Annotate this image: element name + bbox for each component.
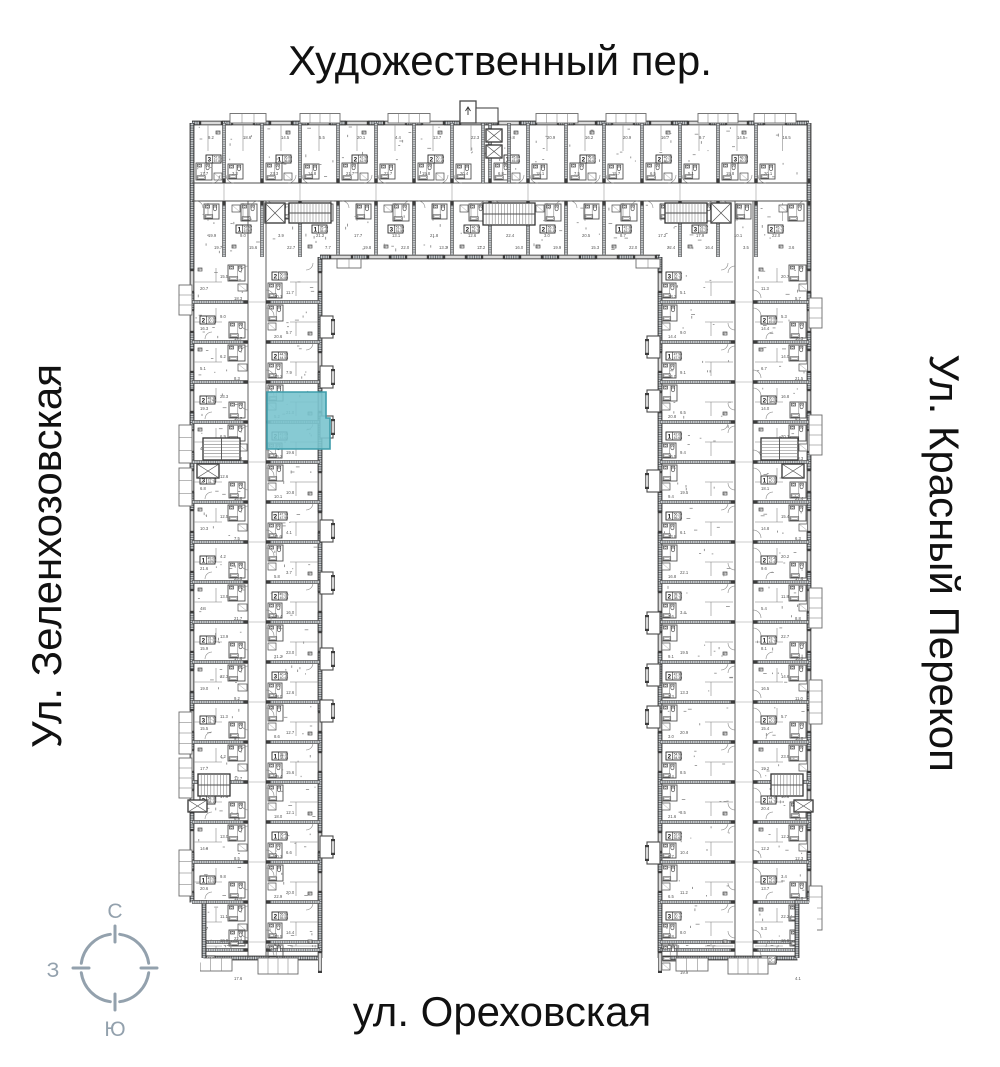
svg-text:15.6: 15.6: [286, 770, 295, 775]
svg-text:23.3: 23.3: [220, 394, 229, 399]
svg-text:5.1: 5.1: [200, 366, 206, 371]
svg-text:11.1: 11.1: [220, 914, 229, 919]
svg-text:1: 1: [278, 156, 282, 163]
svg-text:20.7: 20.7: [781, 274, 790, 279]
svg-text:2: 2: [202, 317, 206, 324]
svg-text:20.9: 20.9: [547, 135, 556, 140]
svg-text:14.4: 14.4: [286, 930, 295, 935]
svg-text:16.2: 16.2: [585, 135, 594, 140]
svg-text:2: 2: [274, 353, 278, 360]
svg-text:43.54: 43.54: [208, 880, 217, 884]
svg-text:14.5: 14.5: [281, 135, 290, 140]
svg-text:20.0: 20.0: [286, 890, 295, 895]
svg-text:16.8: 16.8: [781, 394, 790, 399]
svg-text:9.0: 9.0: [240, 233, 246, 238]
svg-text:5.1: 5.1: [680, 290, 686, 295]
svg-text:З: З: [47, 959, 60, 982]
svg-text:1: 1: [668, 353, 672, 360]
svg-text:16.5: 16.5: [761, 686, 770, 691]
svg-text:11.7: 11.7: [286, 290, 295, 295]
svg-text:9.1: 9.1: [680, 370, 686, 375]
svg-text:30.77: 30.77: [674, 916, 683, 920]
svg-text:13.9: 13.9: [220, 594, 229, 599]
svg-text:23.8: 23.8: [668, 534, 677, 539]
svg-text:31.30: 31.30: [208, 640, 217, 644]
svg-text:2: 2: [658, 156, 662, 163]
svg-text:10.1: 10.1: [274, 494, 283, 499]
svg-text:9.7: 9.7: [234, 736, 240, 741]
svg-text:38.72: 38.72: [674, 596, 683, 600]
svg-text:21.6: 21.6: [200, 566, 209, 571]
svg-text:8.3: 8.3: [234, 376, 240, 381]
svg-text:47.94: 47.94: [674, 356, 683, 360]
svg-text:12.2: 12.2: [477, 245, 486, 250]
svg-text:17.7: 17.7: [200, 171, 209, 176]
svg-text:3.4: 3.4: [781, 874, 787, 879]
svg-text:42.41: 42.41: [769, 560, 778, 564]
svg-text:14.0: 14.0: [761, 406, 770, 411]
svg-text:Художественный пер.: Художественный пер.: [288, 37, 712, 84]
svg-text:5.7: 5.7: [286, 330, 292, 335]
svg-text:14.4: 14.4: [668, 334, 677, 339]
svg-text:50.10: 50.10: [436, 159, 445, 163]
svg-text:9.4: 9.4: [680, 450, 686, 455]
svg-text:3: 3: [668, 913, 672, 920]
svg-text:3: 3: [274, 673, 278, 680]
svg-text:3.3: 3.3: [668, 694, 674, 699]
svg-text:9.8: 9.8: [220, 874, 226, 879]
svg-text:5.1: 5.1: [688, 171, 694, 176]
svg-text:9.1: 9.1: [668, 654, 674, 659]
svg-text:18.0: 18.0: [274, 694, 283, 699]
svg-text:17.7: 17.7: [200, 766, 209, 771]
svg-text:17.6: 17.6: [234, 656, 243, 661]
svg-text:2: 2: [668, 753, 672, 760]
svg-text:13.3: 13.3: [439, 245, 448, 250]
svg-text:3.5: 3.5: [743, 245, 749, 250]
svg-text:12.6: 12.6: [468, 233, 477, 238]
svg-text:15.5: 15.5: [220, 274, 229, 279]
svg-text:16.4: 16.4: [705, 245, 714, 250]
svg-text:14.8: 14.8: [234, 496, 243, 501]
svg-text:2: 2: [668, 833, 672, 840]
svg-text:22.7: 22.7: [781, 634, 790, 639]
svg-text:4.2: 4.2: [220, 554, 226, 559]
svg-text:19.0: 19.0: [200, 686, 209, 691]
svg-text:17.2: 17.2: [658, 233, 667, 238]
svg-text:9.4: 9.4: [668, 494, 674, 499]
svg-text:15.2: 15.2: [274, 454, 283, 459]
svg-text:6.4: 6.4: [668, 774, 674, 779]
svg-text:14.6: 14.6: [781, 674, 790, 679]
svg-text:22.9: 22.9: [274, 894, 283, 899]
svg-text:31.72: 31.72: [208, 720, 217, 724]
svg-text:16.6: 16.6: [781, 938, 790, 943]
svg-text:5.7: 5.7: [795, 296, 801, 301]
svg-text:48.35: 48.35: [208, 400, 217, 404]
svg-text:6.2: 6.2: [220, 354, 226, 359]
svg-text:15.9: 15.9: [200, 646, 209, 651]
svg-text:2: 2: [763, 877, 767, 884]
svg-text:23.0: 23.0: [286, 650, 295, 655]
svg-text:16.7: 16.7: [661, 135, 670, 140]
svg-text:16.8: 16.8: [668, 574, 677, 579]
svg-text:5.8: 5.8: [274, 574, 280, 579]
svg-text:21.5: 21.5: [795, 376, 804, 381]
svg-text:3.4: 3.4: [680, 610, 686, 615]
svg-text:17.6: 17.6: [234, 976, 243, 981]
svg-text:8.9: 8.9: [234, 816, 240, 821]
svg-text:3: 3: [208, 156, 212, 163]
svg-text:8.8: 8.8: [795, 616, 801, 621]
svg-text:20.6: 20.6: [200, 886, 209, 891]
svg-text:36.46: 36.46: [280, 836, 289, 840]
svg-text:20.2: 20.2: [781, 554, 790, 559]
svg-text:46.65: 46.65: [769, 880, 778, 884]
svg-text:11.8: 11.8: [781, 594, 790, 599]
svg-text:1: 1: [202, 557, 206, 564]
svg-text:22.0: 22.0: [401, 245, 410, 250]
svg-text:3.3: 3.3: [232, 171, 238, 176]
svg-text:9.0: 9.0: [220, 314, 226, 319]
svg-text:58.18: 58.18: [208, 800, 217, 804]
svg-text:44.58: 44.58: [280, 356, 289, 360]
svg-text:1: 1: [202, 877, 206, 884]
svg-text:8.5: 8.5: [680, 810, 686, 815]
svg-text:7.5: 7.5: [574, 171, 580, 176]
svg-text:23.5: 23.5: [274, 934, 283, 939]
svg-text:18.0: 18.0: [795, 736, 804, 741]
svg-text:56.61: 56.61: [588, 159, 597, 163]
svg-text:2: 2: [582, 156, 586, 163]
svg-text:30.57: 30.57: [769, 400, 778, 404]
svg-text:2: 2: [763, 797, 767, 804]
svg-text:38.18: 38.18: [280, 756, 289, 760]
svg-text:49.28: 49.28: [280, 596, 289, 600]
svg-text:3: 3: [668, 273, 672, 280]
svg-text:2: 2: [668, 673, 672, 680]
svg-text:22.7: 22.7: [287, 245, 296, 250]
svg-text:20.4: 20.4: [460, 171, 469, 176]
svg-text:15.6: 15.6: [249, 245, 258, 250]
svg-text:40.48: 40.48: [769, 960, 778, 964]
svg-text:3.0: 3.0: [544, 233, 550, 238]
svg-text:54.96: 54.96: [674, 756, 683, 760]
svg-text:57.81: 57.81: [214, 159, 223, 163]
svg-text:14.8: 14.8: [308, 171, 317, 176]
svg-text:20.9: 20.9: [623, 135, 632, 140]
svg-text:20.8: 20.8: [668, 414, 677, 419]
svg-text:Ю: Ю: [104, 1018, 125, 1041]
svg-text:22.2: 22.2: [781, 914, 790, 919]
svg-text:14.8: 14.8: [761, 526, 770, 531]
svg-text:18.1: 18.1: [536, 171, 545, 176]
svg-text:15.8: 15.8: [422, 171, 431, 176]
svg-text:6.7: 6.7: [761, 366, 767, 371]
svg-text:23.5: 23.5: [234, 576, 243, 581]
svg-text:18.1: 18.1: [761, 486, 770, 491]
svg-text:22.3: 22.3: [471, 135, 480, 140]
svg-text:11.2: 11.2: [680, 890, 689, 895]
svg-text:6.5: 6.5: [680, 410, 686, 415]
svg-text:12.3: 12.3: [795, 856, 804, 861]
svg-text:9.7: 9.7: [699, 135, 705, 140]
svg-text:14.0: 14.0: [781, 354, 790, 359]
svg-text:17.7: 17.7: [354, 233, 363, 238]
svg-text:9.2: 9.2: [208, 135, 214, 140]
svg-text:10.7: 10.7: [234, 416, 243, 421]
svg-text:2: 2: [202, 397, 206, 404]
svg-text:2: 2: [430, 156, 434, 163]
svg-text:15.8: 15.8: [726, 171, 735, 176]
svg-text:19.9: 19.9: [220, 938, 229, 943]
svg-text:2: 2: [668, 593, 672, 600]
svg-text:3.6: 3.6: [789, 245, 795, 250]
svg-text:20.9: 20.9: [680, 730, 689, 735]
svg-text:16.3: 16.3: [200, 326, 209, 331]
svg-text:20.1: 20.1: [764, 171, 773, 176]
svg-text:19.4: 19.4: [274, 774, 283, 779]
svg-text:11.4: 11.4: [234, 896, 243, 901]
svg-text:44.75: 44.75: [769, 800, 778, 804]
svg-text:22.7: 22.7: [384, 171, 393, 176]
svg-text:10.4: 10.4: [680, 850, 689, 855]
svg-text:56.24: 56.24: [674, 516, 683, 520]
svg-text:2: 2: [274, 593, 278, 600]
svg-text:17.6: 17.6: [795, 576, 804, 581]
svg-text:11.3: 11.3: [220, 714, 229, 719]
svg-text:9.4: 9.4: [668, 942, 674, 947]
svg-text:46.29: 46.29: [664, 159, 673, 163]
svg-text:13.0: 13.0: [220, 834, 229, 839]
svg-text:36.72: 36.72: [674, 276, 683, 280]
svg-text:6.5: 6.5: [650, 171, 656, 176]
svg-text:21.4: 21.4: [795, 496, 804, 501]
svg-text:3: 3: [202, 717, 206, 724]
svg-text:21.6: 21.6: [668, 814, 677, 819]
svg-text:7.7: 7.7: [325, 245, 331, 250]
svg-text:2: 2: [274, 913, 278, 920]
svg-text:40.36: 40.36: [769, 720, 778, 724]
svg-text:13.1: 13.1: [392, 233, 401, 238]
svg-text:19.5: 19.5: [680, 650, 689, 655]
svg-text:20.7: 20.7: [200, 286, 209, 291]
svg-text:16.5: 16.5: [668, 454, 677, 459]
svg-text:20.1: 20.1: [357, 135, 366, 140]
svg-text:15.3: 15.3: [591, 245, 600, 250]
svg-text:6.1: 6.1: [795, 416, 801, 421]
svg-text:16.0: 16.0: [286, 610, 295, 615]
svg-text:1: 1: [274, 753, 278, 760]
svg-text:15.4: 15.4: [781, 514, 790, 519]
svg-text:5.3: 5.3: [781, 314, 787, 319]
svg-text:20.7: 20.7: [274, 854, 283, 859]
svg-text:20.6: 20.6: [274, 334, 283, 339]
svg-text:19.8: 19.8: [363, 245, 372, 250]
svg-text:Ул. Красный Перекоп: Ул. Красный Перекоп: [921, 354, 968, 772]
svg-text:16.0: 16.0: [515, 245, 524, 250]
svg-text:21.7: 21.7: [234, 616, 243, 621]
svg-text:7.9: 7.9: [286, 370, 292, 375]
svg-text:30.34: 30.34: [208, 320, 217, 324]
svg-text:20.4: 20.4: [761, 806, 770, 811]
svg-text:23.9: 23.9: [781, 754, 790, 759]
svg-text:23.3: 23.3: [270, 171, 279, 176]
svg-text:31.70: 31.70: [208, 480, 217, 484]
svg-text:18.0: 18.0: [274, 814, 283, 819]
svg-text:6.7: 6.7: [668, 854, 674, 859]
svg-text:ул. Ореховская: ул. Ореховская: [353, 988, 652, 1035]
svg-text:14.0: 14.0: [668, 374, 677, 379]
svg-text:2: 2: [763, 317, 767, 324]
svg-text:8.5: 8.5: [795, 816, 801, 821]
svg-text:15.5: 15.5: [200, 726, 209, 731]
svg-text:12.5: 12.5: [220, 514, 229, 519]
svg-text:55.56: 55.56: [280, 916, 289, 920]
svg-text:19.6: 19.6: [286, 450, 295, 455]
svg-text:42.63: 42.63: [674, 436, 683, 440]
svg-text:6.1: 6.1: [680, 530, 686, 535]
svg-text:52.67: 52.67: [674, 836, 683, 840]
svg-text:19.2: 19.2: [761, 766, 770, 771]
svg-text:21.7: 21.7: [346, 171, 355, 176]
svg-text:12.2: 12.2: [781, 834, 790, 839]
svg-text:7.5: 7.5: [234, 536, 240, 541]
svg-text:11.3: 11.3: [761, 286, 770, 291]
svg-text:18.6: 18.6: [243, 135, 252, 140]
svg-text:2: 2: [274, 513, 278, 520]
svg-text:8.5: 8.5: [680, 770, 686, 775]
svg-text:12.2: 12.2: [761, 846, 770, 851]
svg-text:20.5: 20.5: [582, 233, 591, 238]
svg-text:16.3: 16.3: [795, 336, 804, 341]
svg-text:18.3: 18.3: [234, 296, 243, 301]
svg-text:12.7: 12.7: [286, 730, 295, 735]
svg-text:3.7: 3.7: [286, 570, 292, 575]
svg-text:40.38: 40.38: [740, 159, 749, 163]
svg-text:19.9: 19.9: [208, 233, 217, 238]
svg-text:8.7: 8.7: [620, 233, 626, 238]
svg-text:6.3: 6.3: [795, 536, 801, 541]
svg-text:9.6: 9.6: [761, 566, 767, 571]
svg-text:40.42: 40.42: [280, 676, 289, 680]
svg-text:5.3: 5.3: [761, 926, 767, 931]
svg-text:1: 1: [668, 433, 672, 440]
svg-text:22.0: 22.0: [629, 245, 638, 250]
svg-text:22.1: 22.1: [680, 570, 689, 575]
svg-text:15.7: 15.7: [612, 171, 621, 176]
svg-text:С: С: [107, 900, 122, 923]
svg-text:36.84: 36.84: [284, 159, 293, 163]
svg-text:12.6: 12.6: [220, 474, 229, 479]
svg-text:2: 2: [763, 557, 767, 564]
svg-text:5.5: 5.5: [319, 135, 325, 140]
svg-text:21.2: 21.2: [316, 233, 325, 238]
svg-text:14.4: 14.4: [761, 326, 770, 331]
svg-text:10.3: 10.3: [200, 526, 209, 531]
svg-text:5.4: 5.4: [761, 606, 767, 611]
svg-text:45.84: 45.84: [512, 159, 521, 163]
svg-text:4.4: 4.4: [395, 135, 401, 140]
svg-text:8.1: 8.1: [761, 646, 767, 651]
svg-text:10.8: 10.8: [286, 490, 295, 495]
svg-text:19.7: 19.7: [234, 336, 243, 341]
svg-text:22.0: 22.0: [772, 233, 781, 238]
svg-text:21.8: 21.8: [430, 233, 439, 238]
svg-text:50.80: 50.80: [280, 276, 289, 280]
svg-text:1: 1: [763, 477, 767, 484]
svg-text:9.2: 9.2: [234, 696, 240, 701]
svg-text:9.0: 9.0: [680, 330, 686, 335]
svg-text:2: 2: [763, 717, 767, 724]
svg-text:43.77: 43.77: [769, 640, 778, 644]
svg-text:11.6: 11.6: [274, 534, 283, 539]
svg-text:8.5: 8.5: [234, 856, 240, 861]
svg-text:19.9: 19.9: [553, 245, 562, 250]
svg-text:20.1: 20.1: [274, 294, 283, 299]
svg-text:42.39: 42.39: [674, 676, 683, 680]
svg-text:2: 2: [354, 156, 358, 163]
svg-text:47.90: 47.90: [280, 516, 289, 520]
svg-text:4.1: 4.1: [286, 530, 292, 535]
svg-text:13.7: 13.7: [761, 886, 770, 891]
svg-text:19.3: 19.3: [200, 406, 209, 411]
svg-text:12.6: 12.6: [286, 690, 295, 695]
svg-text:6.8: 6.8: [200, 486, 206, 491]
svg-text:5.7: 5.7: [781, 714, 787, 719]
svg-text:17.9: 17.9: [696, 233, 705, 238]
svg-text:Ул. Зеленхозовская: Ул. Зеленхозовская: [23, 364, 70, 748]
svg-text:1: 1: [763, 637, 767, 644]
svg-text:42.98: 42.98: [360, 159, 369, 163]
svg-text:19.5: 19.5: [680, 490, 689, 495]
svg-text:22.4: 22.4: [506, 233, 515, 238]
svg-text:6.1: 6.1: [274, 942, 280, 947]
svg-text:6.5: 6.5: [668, 894, 674, 899]
svg-text:3.9: 3.9: [278, 233, 284, 238]
svg-text:40.33: 40.33: [769, 480, 778, 484]
svg-text:12.1: 12.1: [286, 810, 295, 815]
svg-text:13.3: 13.3: [680, 690, 689, 695]
svg-text:8.0: 8.0: [680, 930, 686, 935]
svg-text:8.8: 8.8: [668, 934, 674, 939]
svg-text:15.4: 15.4: [761, 726, 770, 731]
svg-text:11.0: 11.0: [795, 696, 804, 701]
svg-text:13.9: 13.9: [220, 634, 229, 639]
svg-text:8.6: 8.6: [274, 734, 280, 739]
svg-text:6.8: 6.8: [498, 171, 504, 176]
svg-text:14.5: 14.5: [737, 135, 746, 140]
svg-text:18.3: 18.3: [668, 294, 677, 299]
svg-text:2: 2: [202, 637, 206, 644]
svg-text:16.5: 16.5: [783, 135, 792, 140]
svg-text:1: 1: [668, 513, 672, 520]
svg-text:2: 2: [763, 397, 767, 404]
svg-text:23.2: 23.2: [274, 374, 283, 379]
svg-text:1: 1: [274, 833, 278, 840]
svg-text:3.0: 3.0: [668, 734, 674, 739]
svg-text:3: 3: [734, 156, 738, 163]
svg-text:19.7: 19.7: [214, 245, 223, 250]
svg-text:7.6: 7.6: [668, 614, 674, 619]
svg-text:13.7: 13.7: [433, 135, 442, 140]
svg-text:19.4: 19.4: [274, 614, 283, 619]
svg-text:6.6: 6.6: [286, 850, 292, 855]
